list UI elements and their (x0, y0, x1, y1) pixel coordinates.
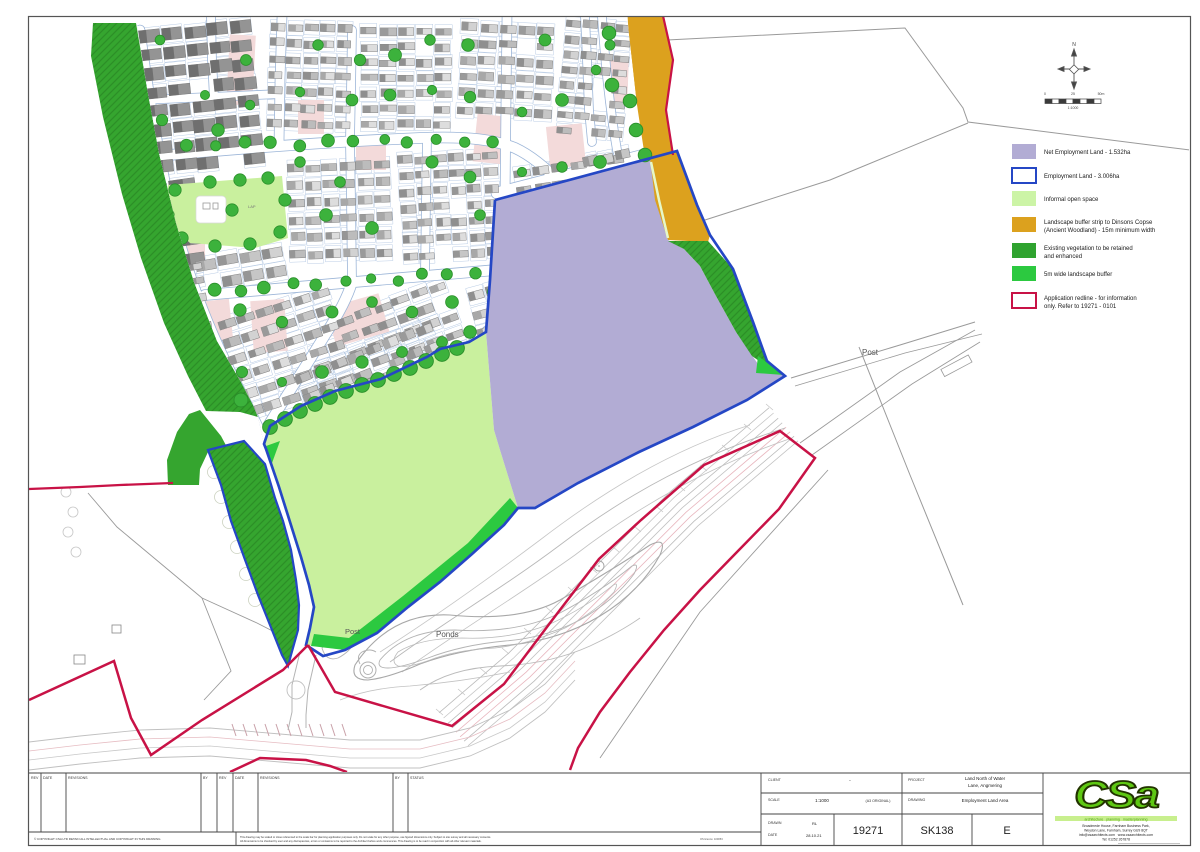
svg-text:RL: RL (812, 821, 818, 826)
svg-text:0: 0 (1044, 92, 1046, 96)
svg-text:Weydon Lane, Farnham, Surrey G: Weydon Lane, Farnham, Surrey GU9 8QT (1084, 829, 1148, 833)
svg-text:This drawing may be scaled or: This drawing may be scaled or close refe… (240, 835, 491, 839)
svg-text:DATE: DATE (43, 776, 53, 780)
svg-text:CSa: CSa (1074, 774, 1159, 816)
svg-text:E: E (1003, 825, 1010, 837)
svg-text:Employment Land Area: Employment Land Area (962, 798, 1009, 803)
svg-text:Post: Post (862, 348, 879, 357)
svg-text:Net Employment Land - 1.532ha: Net Employment Land - 1.532ha (1044, 150, 1131, 156)
svg-text:info@csaarchitects.com www.c: info@csaarchitects.com www.csaarchitects… (1079, 833, 1153, 837)
svg-text:REVISIONS: REVISIONS (260, 776, 280, 780)
svg-text:only. Refer to 19271 - 0101: only. Refer to 19271 - 0101 (1044, 304, 1117, 310)
svg-text:25: 25 (1071, 92, 1075, 96)
svg-text:Informal open space: Informal open space (1044, 197, 1099, 203)
svg-text:50m: 50m (1098, 92, 1105, 96)
svg-text:Employment Land - 3.006ha: Employment Land - 3.006ha (1044, 174, 1120, 180)
svg-text:Post: Post (345, 627, 361, 636)
svg-text:DRAWING: DRAWING (908, 798, 925, 802)
svg-text:Broadmede House, Farnham Busin: Broadmede House, Farnham Business Park, (1082, 824, 1149, 828)
svg-text:STATUS: STATUS (410, 776, 424, 780)
svg-text:(A3 ORIGINAL): (A3 ORIGINAL) (866, 799, 891, 803)
svg-text:CLIENT: CLIENT (768, 778, 782, 782)
svg-text:Land North of Water: Land North of Water (965, 776, 1006, 781)
svg-text:and enhanced: and enhanced (1044, 254, 1082, 260)
svg-text:REVISIONS: REVISIONS (68, 776, 88, 780)
svg-text:DATE: DATE (768, 833, 778, 837)
svg-text:28.10.21: 28.10.21 (806, 833, 822, 838)
svg-text:1:1000: 1:1000 (1068, 106, 1079, 110)
svg-text:© COPYRIGHT CSA LTD RETAIN AL: © COPYRIGHT CSA LTD RETAIN ALL INTELLECT… (34, 837, 161, 841)
svg-text:Ponds: Ponds (436, 630, 459, 639)
svg-text:DRAWN: DRAWN (768, 821, 782, 825)
svg-text:REV: REV (31, 776, 39, 780)
svg-text:5m wide landscape buffer: 5m wide landscape buffer (1044, 272, 1112, 278)
svg-text:Lane, Angmering: Lane, Angmering (968, 783, 1003, 788)
svg-text:BY: BY (203, 776, 208, 780)
svg-text:BY: BY (395, 776, 400, 780)
svg-text:N: N (1072, 42, 1076, 48)
svg-text:1:1000: 1:1000 (815, 798, 829, 803)
svg-text:LAP: LAP (248, 204, 256, 209)
svg-text:19271: 19271 (853, 825, 884, 837)
svg-text:Tel: 01252 267878: Tel: 01252 267878 (1102, 838, 1130, 842)
svg-text:SK138: SK138 (920, 825, 953, 837)
svg-text:architecture planning mast: architecture planning masterplanning (1085, 818, 1148, 822)
svg-text:Existing vegetation to be reta: Existing vegetation to be retained (1044, 246, 1133, 252)
svg-text:REV: REV (219, 776, 227, 780)
svg-text:All dimensions to be checked b: All dimensions to be checked by user and… (240, 839, 482, 843)
svg-text:(Ancient Woodland) - 15m minim: (Ancient Woodland) - 15m minimum width (1044, 228, 1155, 234)
svg-text:Landscape buffer strip to Dins: Landscape buffer strip to Dinsons Copse (1044, 220, 1153, 226)
svg-text:Application redline - for info: Application redline - for information (1044, 296, 1137, 302)
svg-text:SCALE: SCALE (768, 798, 780, 802)
svg-text:OS licence: 100053: OS licence: 100053 (700, 837, 723, 841)
svg-text:PROJECT: PROJECT (908, 778, 926, 782)
svg-text:DATE: DATE (235, 776, 245, 780)
